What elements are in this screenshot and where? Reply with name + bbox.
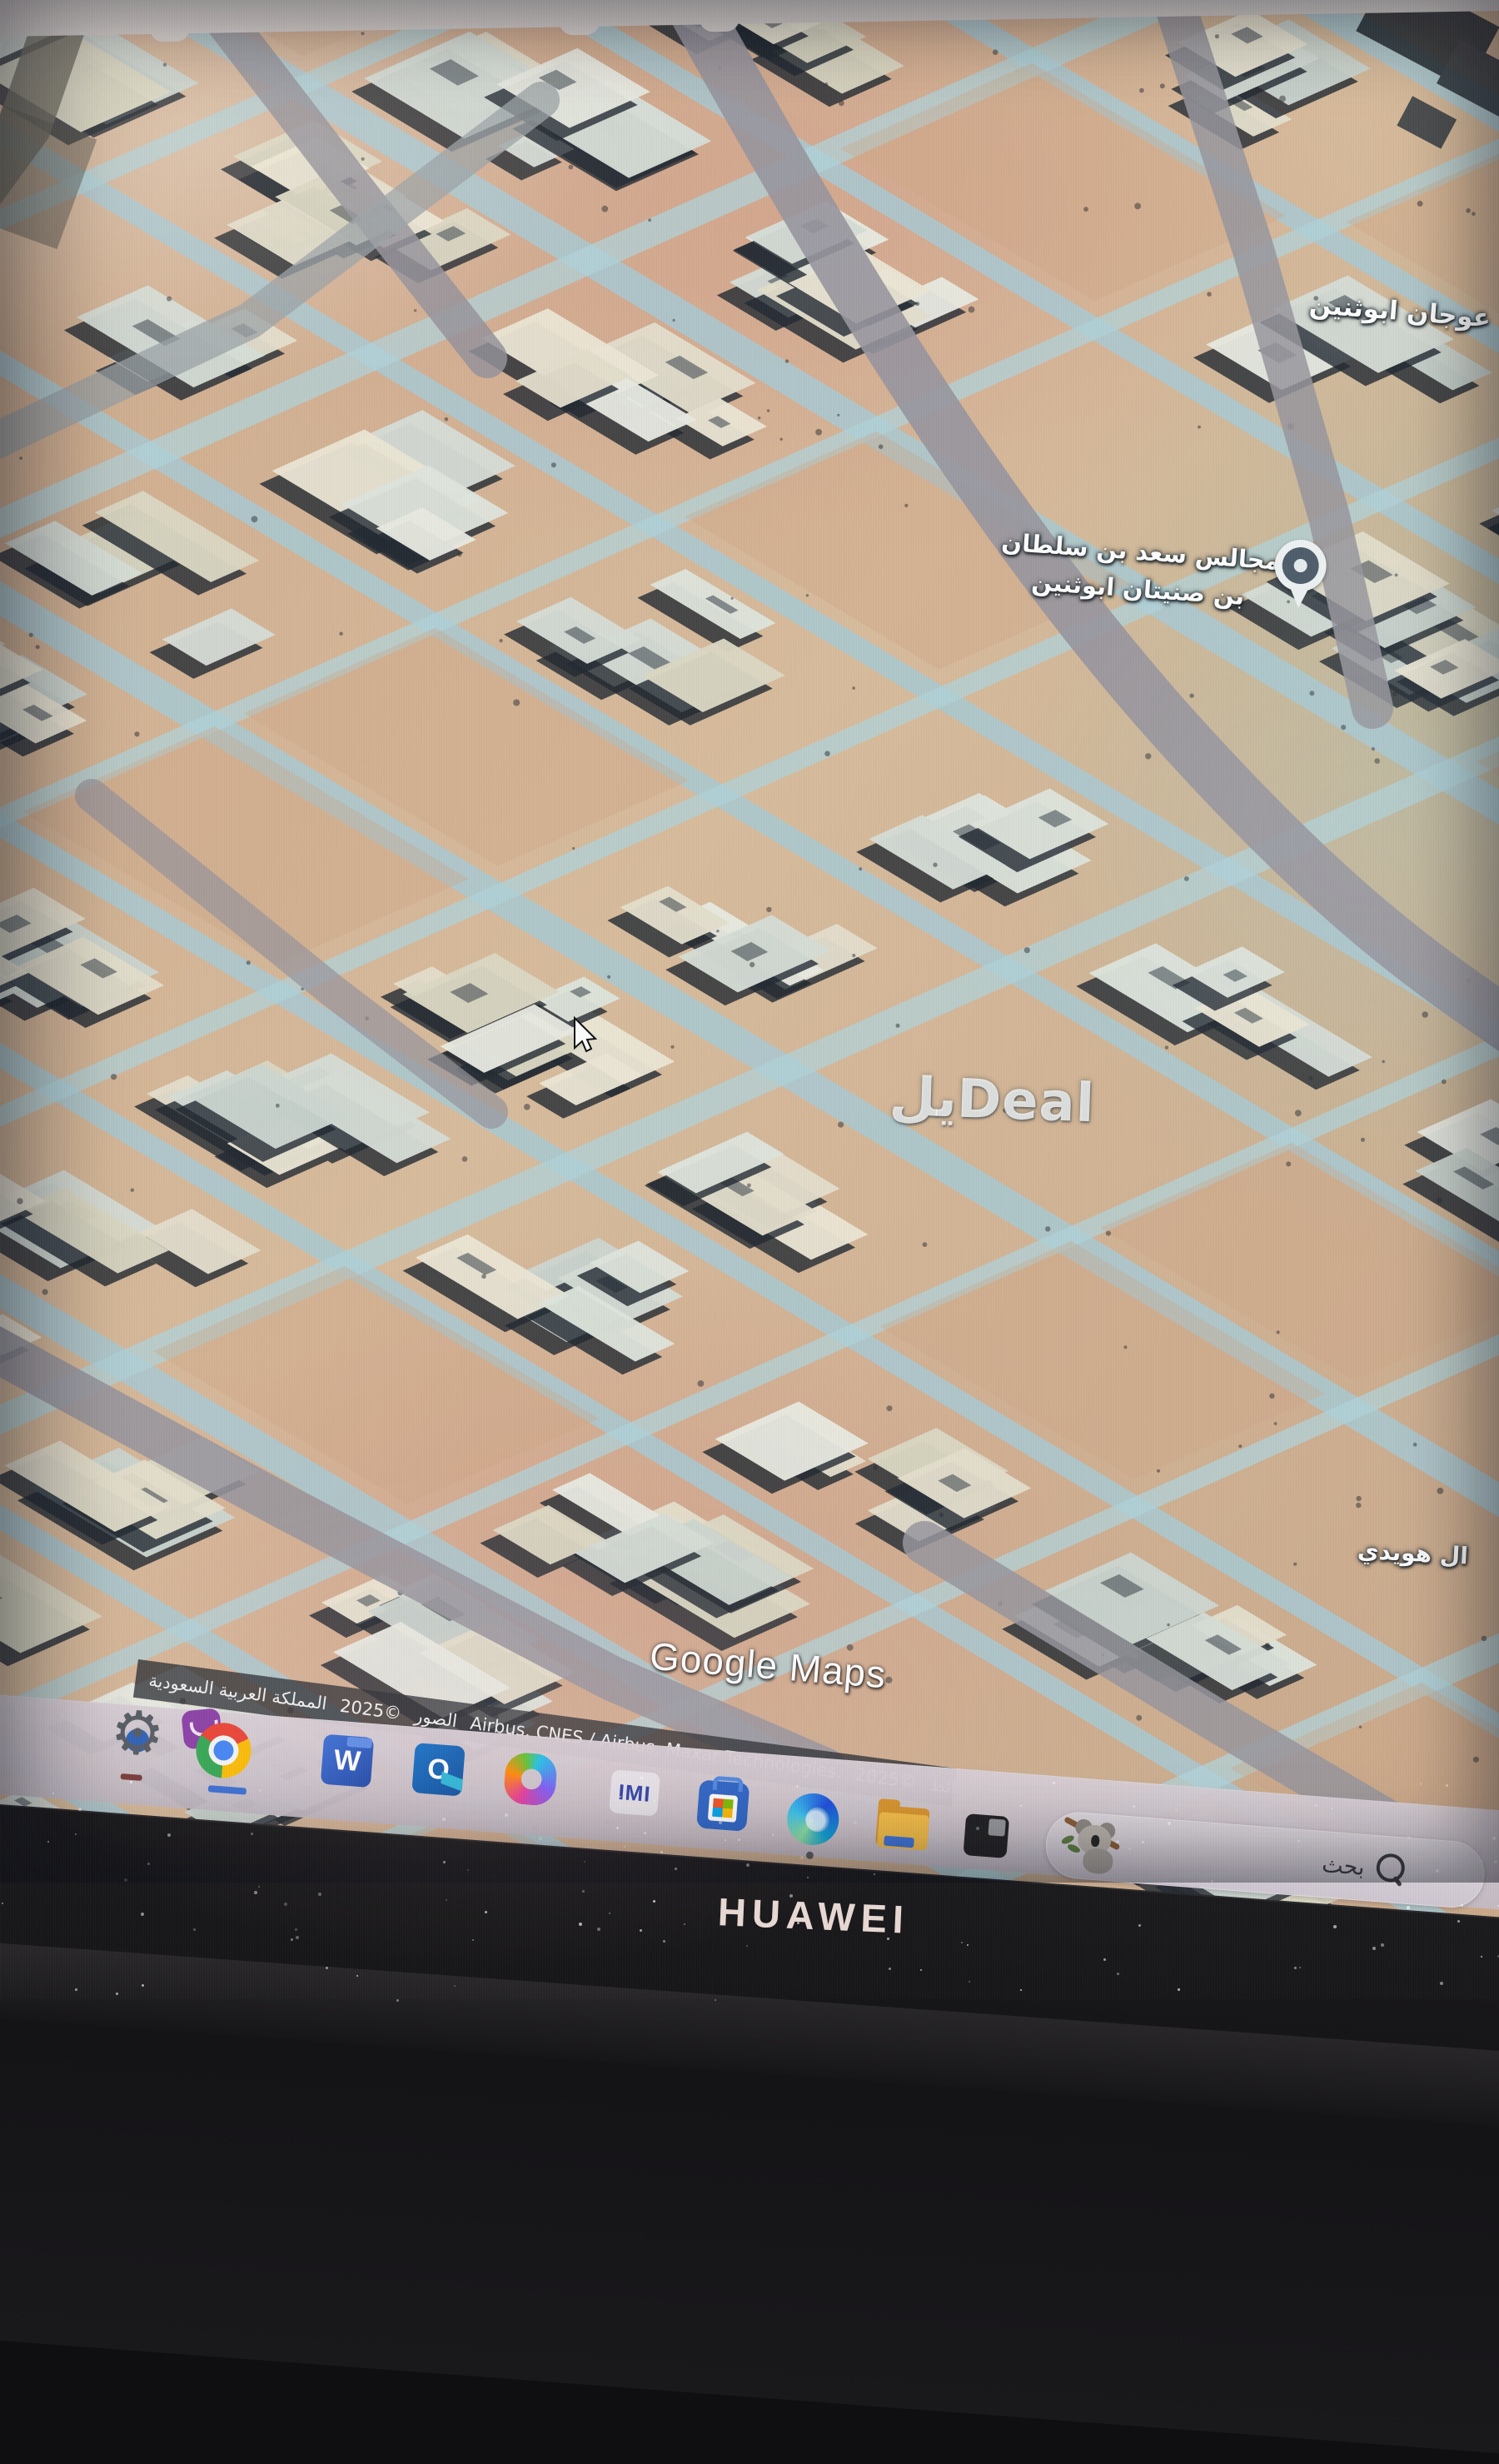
deal-watermark-latin: Deal (956, 1069, 1096, 1135)
file-explorer-icon[interactable] (875, 1802, 932, 1854)
word-icon[interactable]: W (321, 1734, 374, 1788)
deal-watermark-arabic: يل (889, 1066, 959, 1130)
search-icon (1375, 1853, 1406, 1886)
huawei-logo: HUAWEI (717, 1888, 910, 1943)
microsoft-store-icon[interactable] (696, 1779, 749, 1831)
koala-body (1082, 1848, 1113, 1875)
koala-widget-icon[interactable] (1057, 1814, 1123, 1878)
dark-app-icon[interactable] (963, 1813, 1009, 1858)
edge-icon[interactable] (785, 1792, 841, 1848)
imi-text: IMI (617, 1778, 651, 1807)
pin-tail (1288, 586, 1309, 608)
settings-gear-icon[interactable]: ⚙ (108, 1709, 167, 1768)
word-letter: W (332, 1743, 361, 1778)
gear-glyph: ⚙ (108, 1701, 167, 1765)
copilot-icon[interactable] (503, 1751, 559, 1807)
place-label-al-huwaidi: ال هويدي (1357, 1537, 1469, 1570)
mouse-cursor-icon (571, 1016, 605, 1058)
attribution-year-imagery: 2025© (339, 1696, 403, 1724)
chrome-running-indicator (208, 1785, 247, 1795)
search-label: بحث (1321, 1852, 1366, 1881)
magnifier-lens (1376, 1853, 1407, 1883)
outlook-letter: O (426, 1753, 451, 1787)
store-window-logo (708, 1793, 738, 1823)
settings-running-indicator (120, 1773, 142, 1781)
map-place-pin-icon[interactable] (1272, 538, 1328, 614)
outlook-icon[interactable]: O (411, 1743, 465, 1796)
deal-app-watermark: يلDeal (889, 1066, 1096, 1135)
imi-icon[interactable]: IMI (609, 1769, 660, 1816)
photo-of-laptop-screen: { "map": { "labels": { "awjan": "عوجان ا… (0, 0, 1499, 1999)
